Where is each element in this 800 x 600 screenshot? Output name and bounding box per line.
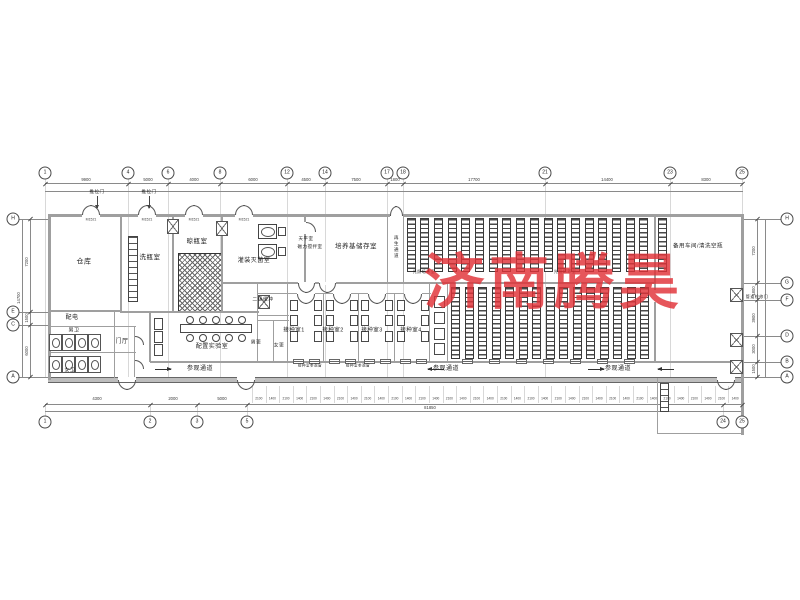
airlock-door [167, 219, 179, 234]
extension-line [443, 386, 444, 403]
dim-value: 2100 [664, 397, 671, 400]
autoclave-1 [258, 224, 277, 239]
double-door [390, 206, 403, 215]
extension-line [483, 386, 484, 403]
outer-bottom-wall [48, 377, 743, 383]
extension-line [402, 386, 403, 403]
clean-bench [350, 300, 358, 311]
dim-value: 2100 [609, 397, 616, 400]
double-door [185, 205, 203, 214]
dim-value: 5000 [217, 397, 226, 401]
lab-side-equipment [154, 344, 163, 356]
grid-bubble-top: 23 [664, 167, 677, 180]
observation-window [380, 359, 391, 364]
drying-rack-area [178, 253, 222, 312]
extension-line [538, 386, 539, 403]
extension-line [19, 325, 48, 326]
dim-value: 1400 [459, 397, 466, 400]
dim-value: 1400 [704, 397, 711, 400]
extension-line [579, 386, 580, 403]
extension-line [565, 386, 566, 403]
culture-rack [407, 218, 416, 272]
double-door [717, 380, 735, 389]
room-label-inoculation-room-3: 接种室3 [361, 328, 383, 334]
lab-side-equipment [154, 331, 163, 343]
extension-line [293, 386, 294, 403]
dim-value: 1400 [269, 397, 276, 400]
corridor-flow-arrow [658, 369, 674, 370]
grid-bubble-right: G [781, 277, 794, 290]
clean-bench [314, 331, 322, 342]
plan-layer: 济南腾昊 14681214171821232512352425HECAHGFDB… [0, 0, 800, 600]
airlock-door [730, 360, 743, 374]
double-door [298, 283, 315, 292]
extension-line [320, 386, 321, 403]
small-equipment [278, 247, 286, 256]
wall-warehouse-south [48, 310, 120, 312]
clean-bench [421, 315, 429, 326]
grid-bubble-top: 6 [162, 167, 175, 180]
small-equipment [278, 227, 286, 236]
lab-stool [199, 316, 207, 324]
toilet-stall [88, 334, 101, 351]
wall-regen-east [403, 214, 404, 283]
wall-porch-south [658, 433, 743, 434]
dim-value: 6000 [248, 178, 257, 182]
wall-power-south [48, 326, 136, 327]
grid-bubble-right: A [781, 371, 794, 384]
extension-line [647, 386, 648, 403]
grid-bubble-top: 8 [214, 167, 227, 180]
dim-value: 1500 [25, 313, 29, 322]
wall-buffer2-south [258, 315, 289, 316]
lab-side-equipment [154, 318, 163, 330]
extension-line [456, 386, 457, 403]
door-leaf-arc [341, 294, 351, 304]
dim-value: 4000 [189, 178, 198, 182]
airlock-door [730, 333, 743, 347]
wall-medium-east [387, 214, 388, 283]
dim-overall: 81850 [424, 406, 436, 410]
lab-stool [225, 334, 233, 342]
dim-value: 4300 [92, 397, 101, 401]
grid-line [325, 178, 326, 378]
wall-warehouse-east [120, 214, 122, 311]
room-label-inoculation-room-1: 接种室1 [283, 328, 305, 334]
door-code: M1521 [86, 218, 97, 222]
door-leaf-arc [395, 206, 403, 216]
grid-bubble-top: 12 [281, 167, 294, 180]
extension-line [279, 386, 280, 403]
grid-line [168, 178, 169, 378]
extension-line [334, 386, 335, 403]
dim-value: 4500 [301, 178, 310, 182]
grid-bubble-top: 25 [736, 167, 749, 180]
extension-line [470, 386, 471, 403]
room-label-inoc-view-window-2: 接种室参观窗 [346, 364, 370, 368]
lab-stool [186, 334, 194, 342]
grid-bubble-bottom: 5 [241, 416, 254, 429]
dim-value: 1400 [541, 397, 548, 400]
observation-window [516, 359, 527, 364]
dim-value: 1400 [732, 397, 739, 400]
room-label-warehouse: 仓库 [77, 259, 92, 266]
dim-value: 1400 [351, 397, 358, 400]
dim-value: 2100 [691, 397, 698, 400]
dimension-line [45, 183, 743, 184]
grid-bubble-right: F [781, 294, 794, 307]
extension-line [743, 300, 781, 301]
clean-bench [314, 300, 322, 311]
dimension-line [30, 219, 31, 377]
extension-line [743, 362, 781, 363]
dim-value: 1400 [650, 397, 657, 400]
dim-value: 1400 [432, 397, 439, 400]
extension-line [606, 386, 607, 403]
extension-line [592, 386, 593, 403]
extension-line [388, 386, 389, 403]
room-label-regeneration-corridor: 再生通道 [394, 235, 399, 259]
dim-value: 17700 [468, 178, 480, 182]
dim-value: 5000 [143, 178, 152, 182]
observation-window [543, 359, 554, 364]
double-door [235, 205, 253, 214]
grid-bubble-bottom: 1 [39, 416, 52, 429]
bottle-conveyor [128, 236, 138, 302]
extension-line [497, 386, 498, 403]
dim-value: 2100 [255, 397, 262, 400]
wall-changing-divider [273, 320, 274, 361]
wall-lab-north [120, 311, 259, 313]
toilet-stall [49, 356, 62, 373]
single-door-arc [135, 360, 144, 369]
dim-value: 7500 [351, 178, 360, 182]
dim-value: 2100 [310, 397, 317, 400]
lab-stool [199, 334, 207, 342]
room-label-visit-corridor-1: 参观通道 [187, 366, 213, 372]
dim-value: 1400 [487, 397, 494, 400]
extension-line [19, 312, 48, 313]
room-label-toilet-male: 男卫 [68, 329, 79, 334]
observation-window [597, 359, 608, 364]
dim-value: 1800 [390, 178, 399, 182]
dim-value: 2100 [636, 397, 643, 400]
autoclave-2 [258, 244, 277, 259]
extension-line [674, 386, 675, 403]
dim-value: 1400 [378, 397, 385, 400]
clean-bench [385, 331, 393, 342]
dim-value: 7200 [752, 246, 756, 255]
extension-line [551, 386, 552, 403]
dim-value: 1400 [323, 397, 330, 400]
room-label-bottle-drying-room: 晾瓶室 [187, 239, 208, 246]
clean-bench [385, 300, 393, 311]
lab-stool [238, 334, 246, 342]
corridor-flow-arrow [155, 369, 171, 370]
door-leaf-arc [326, 283, 336, 293]
room-label-stirrer-room-note: 磁力搅拌室 [298, 245, 323, 250]
clean-bench [290, 315, 298, 326]
dim-value: 1400 [596, 397, 603, 400]
observation-window [400, 359, 411, 364]
extension-line [429, 386, 430, 403]
grid-bubble-left: C [7, 319, 20, 332]
extension-line [511, 386, 512, 403]
dim-value: 2100 [555, 397, 562, 400]
sliding-door-arrow [97, 196, 98, 208]
dim-value: 1400 [514, 397, 521, 400]
observation-window [416, 359, 427, 364]
room-label-medium-storage-room: 培养基储存室 [335, 244, 377, 251]
door-leaf-arc [376, 294, 386, 304]
lab-bench [180, 324, 252, 333]
grid-bubble-right: B [781, 356, 794, 369]
room-label-inoc-view-window-1: 接种室参观窗 [298, 364, 322, 368]
dim-value: 2100 [500, 397, 507, 400]
dim-value: 1400 [677, 397, 684, 400]
dimension-line [22, 219, 23, 377]
grid-bubble-left: E [7, 306, 20, 319]
door-leaf-arc [412, 294, 422, 304]
room-label-balance-room-note: 天平室 [299, 237, 314, 242]
grid-bubble-left: A [7, 371, 20, 384]
extension-line [743, 283, 781, 284]
single-door-arc [135, 336, 144, 345]
clean-bench [434, 328, 445, 340]
lab-stool [238, 316, 246, 324]
extension-line [701, 386, 702, 403]
corridor-flow-arrow [588, 369, 604, 370]
door-leaf-arc [126, 380, 136, 390]
door-leaf-arc [193, 205, 203, 215]
wall-inoc-div-3 [394, 293, 395, 362]
room-label-toilet-female: 女卫 [64, 369, 75, 374]
room-label-visit-corridor-2: 参观通道 [433, 366, 459, 372]
double-door [404, 294, 422, 303]
room-label-entrance-hall: 门厅 [115, 339, 128, 345]
dim-value: 14400 [601, 178, 613, 182]
airlock-door [730, 288, 743, 302]
room-label-visit-corridor-3: 参观通道 [605, 366, 631, 372]
grid-line [45, 178, 46, 378]
extension-line [743, 377, 781, 378]
extension-line [374, 386, 375, 403]
room-label-sliding-door-note-2: 推拉门 [142, 190, 157, 195]
dim-value: 7200 [25, 257, 29, 266]
extension-line [524, 386, 525, 403]
toilet-stall [62, 334, 75, 351]
extension-line [715, 386, 716, 403]
double-door [118, 380, 136, 389]
grid-bubble-bottom: 25 [736, 416, 749, 429]
grid-bubble-bottom: 24 [717, 416, 730, 429]
grid-bubble-top: 4 [122, 167, 135, 180]
dim-value: 1400 [405, 397, 412, 400]
room-label-pipe-access-door-note: 管道检修门 [746, 295, 769, 299]
room-label-inoculation-room-4: 接种室4 [400, 328, 422, 334]
floor-plan-drawing: 济南腾昊 14681214171821232512352425HECAHGFDB… [0, 0, 800, 600]
room-label-prep-laboratory: 配置实验室 [196, 344, 229, 350]
dim-value: 2100 [473, 397, 480, 400]
dim-value: 2100 [282, 397, 289, 400]
toilet-stall [75, 334, 88, 351]
extension-line [633, 386, 634, 403]
clean-bench [350, 331, 358, 342]
dim-value: 3900 [752, 313, 756, 322]
extension-line [19, 377, 48, 378]
grid-bubble-bottom: 2 [144, 416, 157, 429]
toilet-stall [49, 334, 62, 351]
sliding-door-arrow [149, 196, 150, 208]
door-leaf-arc [305, 283, 315, 293]
clean-bench [397, 315, 405, 326]
room-label-power-distribution: 配电 [65, 315, 78, 321]
dim-value: 8300 [701, 178, 710, 182]
double-door [297, 294, 315, 303]
double-door [333, 294, 351, 303]
dim-value: 2100 [446, 397, 453, 400]
door-code: M1521 [189, 218, 200, 222]
extension-line [19, 219, 48, 220]
double-door [368, 294, 386, 303]
wall-porch-west [657, 378, 658, 434]
door-leaf-arc [725, 380, 735, 390]
grid-bubble-left: H [7, 213, 20, 226]
observation-window [570, 359, 581, 364]
grid-bubble-top: 1 [39, 167, 52, 180]
toilet-stall [88, 356, 101, 373]
dim-value: 9900 [81, 178, 90, 182]
door-leaf-arc [243, 205, 253, 215]
grid-bubble-top: 14 [319, 167, 332, 180]
grid-bubble-right: H [781, 213, 794, 226]
clean-bench [314, 315, 322, 326]
dim-value: 1500 [752, 364, 756, 373]
dim-value: 1400 [568, 397, 575, 400]
lab-stool [225, 316, 233, 324]
observation-window [624, 359, 635, 364]
lab-stool [186, 316, 194, 324]
room-label-bottle-washing-room: 洗瓶室 [140, 255, 161, 262]
wall-toilet-divider [48, 352, 136, 353]
dim-value: 3000 [752, 344, 756, 353]
dimension-line [45, 411, 743, 412]
lab-stool [212, 316, 220, 324]
extension-line [619, 386, 620, 403]
room-label-sliding-door-note-1: 推拉门 [90, 190, 105, 195]
double-door [237, 380, 255, 389]
dim-value: 1400 [623, 397, 630, 400]
lab-stool [212, 334, 220, 342]
clean-bench [361, 315, 369, 326]
clean-bench [350, 315, 358, 326]
extension-line [306, 386, 307, 403]
extension-line [743, 336, 781, 337]
room-label-changing-male: 男更 [251, 342, 262, 347]
clean-bench [385, 315, 393, 326]
observation-window [489, 359, 500, 364]
dim-value: 2100 [582, 397, 589, 400]
watermark-text: 济南腾昊 [424, 253, 684, 313]
extension-line [266, 386, 267, 403]
wall-inoc-div-2 [358, 293, 359, 362]
dim-total: 14700 [17, 292, 21, 304]
room-label-inoculation-room-2: 接种室2 [322, 328, 344, 334]
dim-value: 2000 [168, 397, 177, 401]
double-door [319, 283, 336, 292]
dim-value: 2100 [364, 397, 371, 400]
extension-line [361, 386, 362, 403]
toilet-stall [75, 356, 88, 373]
clean-bench [326, 315, 334, 326]
single-door-arc [306, 222, 316, 232]
door-leaf-arc [245, 380, 255, 390]
room-label-secondary-buffer: 二级缓冲 [252, 299, 273, 304]
observation-window [329, 359, 340, 364]
door-code: M1521 [142, 218, 153, 222]
extension-line [743, 219, 781, 220]
wall-lab-west [149, 311, 151, 362]
extension-line [688, 386, 689, 403]
dim-value: 2100 [718, 397, 725, 400]
grid-bubble-bottom: 3 [191, 416, 204, 429]
dim-value: 6000 [25, 346, 29, 355]
door-leaf-arc [305, 294, 315, 304]
wall-buffer-west [257, 282, 258, 362]
dim-value: 1400 [296, 397, 303, 400]
wall-toilet-east [134, 326, 135, 378]
grid-bubble-top: 21 [539, 167, 552, 180]
grid-bubble-right: D [781, 330, 794, 343]
door-code: M1521 [239, 218, 250, 222]
dim-value: 2100 [337, 397, 344, 400]
dim-value: 2100 [391, 397, 398, 400]
dim-value: 2100 [527, 397, 534, 400]
observation-window [462, 359, 473, 364]
room-label-filling-sterilizing-room: 灌装灭菌室 [238, 258, 271, 264]
clean-bench [434, 343, 445, 355]
wall-inoc1-west [287, 282, 288, 362]
extension-line [415, 386, 416, 403]
room-label-changing-female: 女更 [274, 345, 285, 350]
dim-value: 2100 [419, 397, 426, 400]
airlock-door [216, 221, 228, 236]
extension-line [347, 386, 348, 403]
